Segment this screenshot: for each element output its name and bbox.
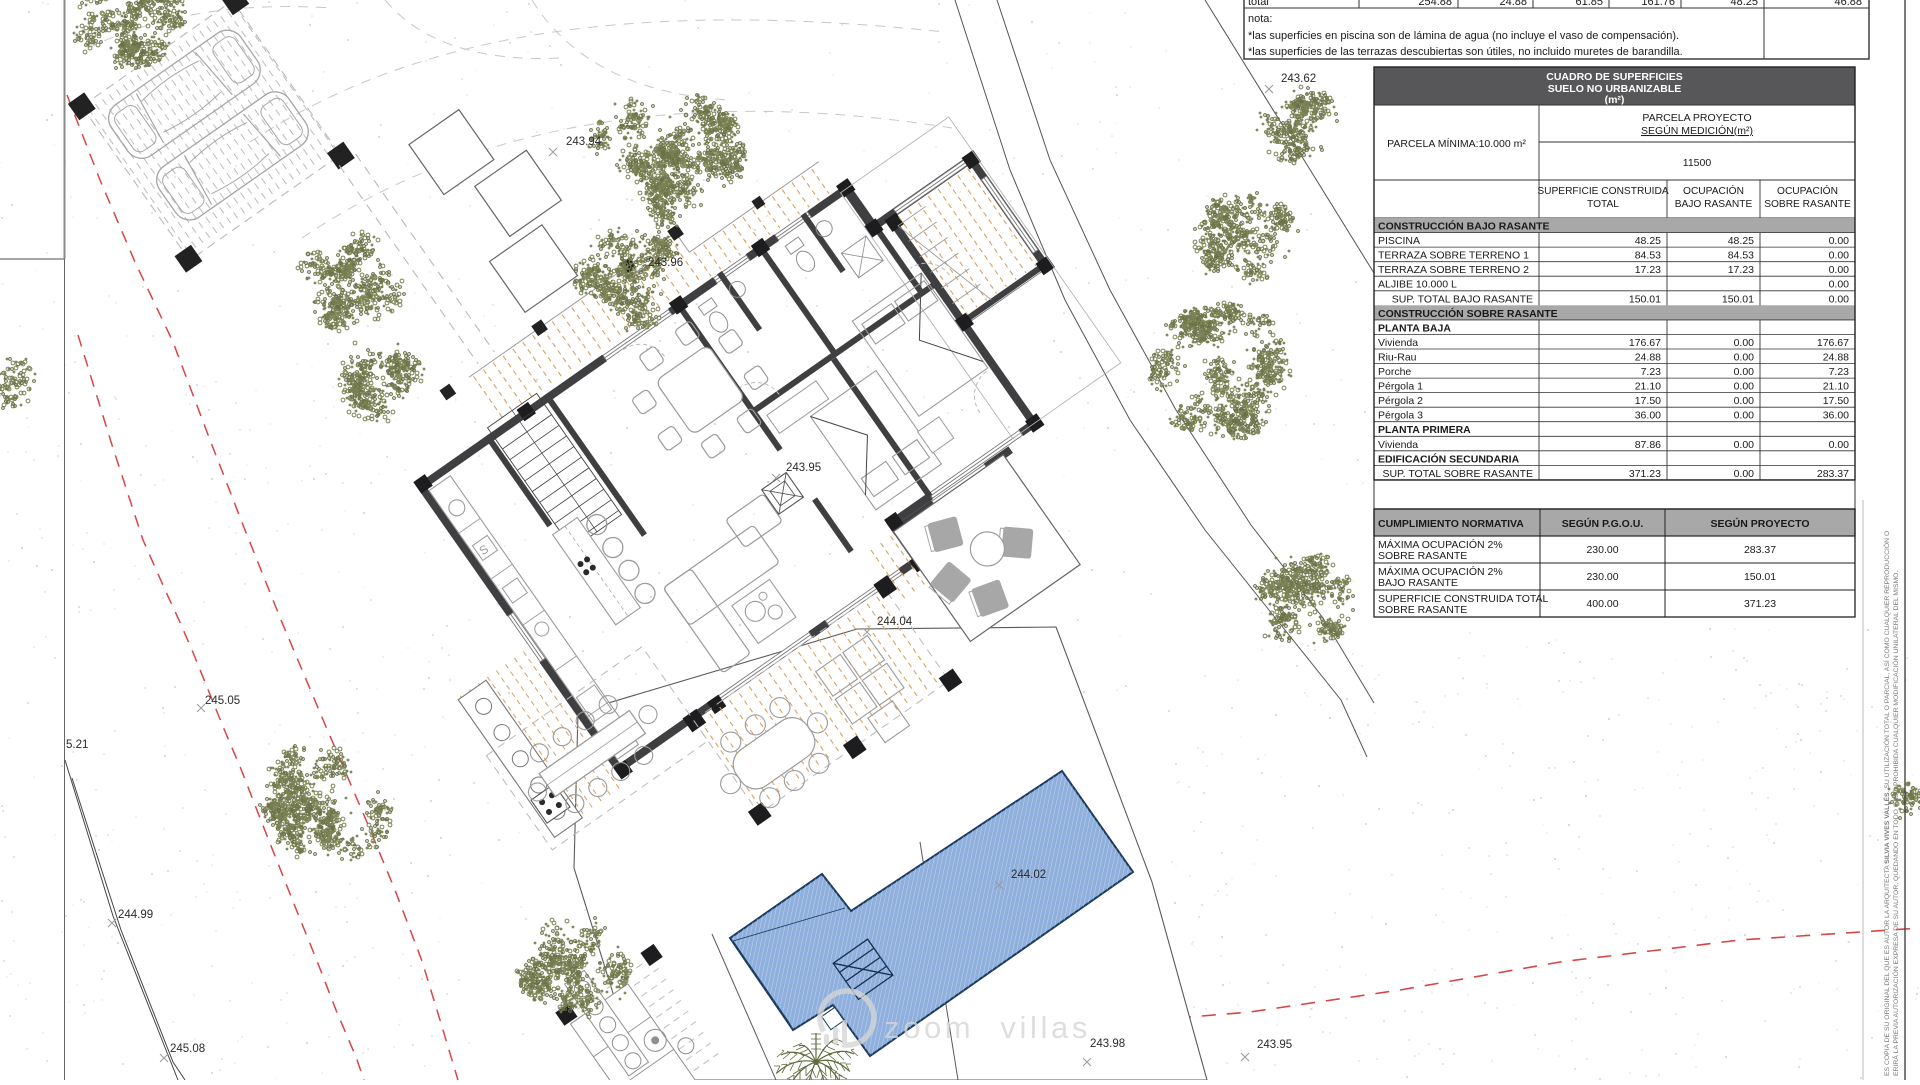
svg-text:SUP. TOTAL BAJO RASANTE: SUP. TOTAL BAJO RASANTE xyxy=(1392,293,1533,305)
svg-text:*las superficies de las terraz: *las superficies de las terrazas descubi… xyxy=(1248,46,1683,58)
svg-text:243.96: 243.96 xyxy=(648,257,683,269)
svg-text:48.25: 48.25 xyxy=(1728,235,1754,247)
svg-text:0.00: 0.00 xyxy=(1734,410,1755,422)
svg-text:0.00: 0.00 xyxy=(1734,439,1755,451)
svg-text:0.00: 0.00 xyxy=(1734,468,1755,480)
svg-text:CUMPLIMIENTO NORMATIVA: CUMPLIMIENTO NORMATIVA xyxy=(1378,518,1524,530)
svg-text:TOTAL: TOTAL xyxy=(1587,199,1619,210)
svg-text:ES COPIA DE SU ORIGINAL DEL QU: ES COPIA DE SU ORIGINAL DEL QUE ES AUTOR… xyxy=(1882,531,1891,1076)
svg-text:SUPERFICIE CONSTRUIDA: SUPERFICIE CONSTRUIDA xyxy=(1537,186,1669,197)
svg-text:24.88: 24.88 xyxy=(1635,352,1661,364)
svg-text:ERIRÁ LA PREVIA AUTORIZACIÓN E: ERIRÁ LA PREVIA AUTORIZACIÓN EXPRESA DE … xyxy=(1891,571,1900,1076)
svg-text:371.23: 371.23 xyxy=(1629,468,1661,480)
svg-text:PISCINA: PISCINA xyxy=(1378,235,1420,247)
svg-text:BAJO RASANTE: BAJO RASANTE xyxy=(1378,577,1458,589)
svg-text:244.02: 244.02 xyxy=(1011,869,1046,881)
svg-text:TERRAZA SOBRE TERRENO 1: TERRAZA SOBRE TERRENO 1 xyxy=(1378,250,1529,262)
svg-text:283.37: 283.37 xyxy=(1744,544,1776,556)
svg-text:0.00: 0.00 xyxy=(1734,352,1755,364)
svg-text:243.98: 243.98 xyxy=(1090,1038,1125,1050)
svg-text:244.04: 244.04 xyxy=(877,616,913,628)
svg-text:150.01: 150.01 xyxy=(1629,293,1661,305)
svg-text:283.37: 283.37 xyxy=(1817,468,1849,480)
svg-text:17.50: 17.50 xyxy=(1635,395,1661,407)
svg-text:Pérgola 2: Pérgola 2 xyxy=(1378,395,1423,407)
svg-text:0.00: 0.00 xyxy=(1829,279,1850,291)
svg-text:24.88: 24.88 xyxy=(1499,0,1527,8)
svg-text:zoom villas: zoom villas xyxy=(884,1010,1091,1045)
svg-text:87.86: 87.86 xyxy=(1635,439,1661,451)
svg-text:Porche: Porche xyxy=(1378,366,1411,378)
svg-text:48.25: 48.25 xyxy=(1730,0,1758,8)
svg-text:0.00: 0.00 xyxy=(1829,250,1850,262)
svg-text:ALJIBE 10.000 L: ALJIBE 10.000 L xyxy=(1378,279,1457,291)
svg-text:150.01: 150.01 xyxy=(1722,293,1754,305)
svg-text:*las superficies en piscina so: *las superficies en piscina son de lámin… xyxy=(1248,30,1679,42)
svg-text:PLANTA PRIMERA: PLANTA PRIMERA xyxy=(1378,424,1471,436)
svg-text:371.23: 371.23 xyxy=(1744,598,1776,610)
svg-text:0.00: 0.00 xyxy=(1734,366,1755,378)
svg-text:254.88: 254.88 xyxy=(1418,0,1452,8)
svg-text:SOBRE RASANTE: SOBRE RASANTE xyxy=(1764,199,1851,210)
svg-text:243.95: 243.95 xyxy=(1257,1039,1292,1051)
svg-text:Pérgola 3: Pérgola 3 xyxy=(1378,410,1423,422)
svg-text:CONSTRUCCIÓN SOBRE RASANTE: CONSTRUCCIÓN SOBRE RASANTE xyxy=(1378,307,1558,320)
svg-text:21.10: 21.10 xyxy=(1823,381,1849,393)
svg-text:OCUPACIÓN: OCUPACIÓN xyxy=(1777,184,1838,197)
svg-text:Pérgola 1: Pérgola 1 xyxy=(1378,381,1423,393)
svg-text:SOBRE RASANTE: SOBRE RASANTE xyxy=(1378,604,1467,616)
svg-text:PARCELA PROYECTO: PARCELA PROYECTO xyxy=(1642,112,1751,124)
svg-text:17.23: 17.23 xyxy=(1635,264,1661,276)
svg-text:BAJO RASANTE: BAJO RASANTE xyxy=(1675,199,1753,210)
svg-text:0.00: 0.00 xyxy=(1829,264,1850,276)
svg-text:Vivienda: Vivienda xyxy=(1378,439,1418,451)
svg-text:TERRAZA SOBRE TERRENO 2: TERRAZA SOBRE TERRENO 2 xyxy=(1378,264,1529,276)
svg-text:0.00: 0.00 xyxy=(1734,381,1755,393)
svg-text:SEGÚN PROYECTO: SEGÚN PROYECTO xyxy=(1711,517,1810,530)
svg-text:21.10: 21.10 xyxy=(1635,381,1661,393)
svg-text:Riu-Rau: Riu-Rau xyxy=(1378,352,1417,364)
svg-text:46.88: 46.88 xyxy=(1834,0,1862,8)
svg-text:245.05: 245.05 xyxy=(205,695,240,707)
svg-text:24.88: 24.88 xyxy=(1823,352,1849,364)
svg-text:48.25: 48.25 xyxy=(1635,235,1661,247)
svg-text:243.62: 243.62 xyxy=(1281,73,1316,85)
svg-text:400.00: 400.00 xyxy=(1586,598,1618,610)
svg-text:7.23: 7.23 xyxy=(1641,366,1662,378)
svg-text:230.00: 230.00 xyxy=(1586,544,1618,556)
svg-text:245.08: 245.08 xyxy=(170,1043,205,1055)
svg-text:total: total xyxy=(1248,0,1269,8)
svg-text:244.99: 244.99 xyxy=(118,909,153,921)
svg-text:0.00: 0.00 xyxy=(1829,235,1850,247)
svg-text:SEGÚN P.G.O.U.: SEGÚN P.G.O.U. xyxy=(1562,517,1644,530)
svg-text:SOBRE RASANTE: SOBRE RASANTE xyxy=(1378,550,1467,562)
svg-text:0.00: 0.00 xyxy=(1829,293,1850,305)
svg-text:SUP. TOTAL SOBRE RASANTE: SUP. TOTAL SOBRE RASANTE xyxy=(1382,468,1533,480)
svg-text:nota:: nota: xyxy=(1248,13,1272,25)
svg-text:5.21: 5.21 xyxy=(66,739,88,751)
svg-text:Vivienda: Vivienda xyxy=(1378,337,1418,349)
svg-text:17.50: 17.50 xyxy=(1823,395,1849,407)
svg-text:EDIFICACIÓN SECUNDARIA: EDIFICACIÓN SECUNDARIA xyxy=(1378,452,1520,465)
svg-text:CONSTRUCCIÓN BAJO RASANTE: CONSTRUCCIÓN BAJO RASANTE xyxy=(1378,220,1550,233)
svg-text:36.00: 36.00 xyxy=(1823,410,1849,422)
svg-text:0.00: 0.00 xyxy=(1829,439,1850,451)
svg-text:7.23: 7.23 xyxy=(1829,366,1850,378)
svg-text:176.67: 176.67 xyxy=(1629,337,1661,349)
svg-text:84.53: 84.53 xyxy=(1635,250,1661,262)
svg-text:176.67: 176.67 xyxy=(1817,337,1849,349)
svg-text:161.76: 161.76 xyxy=(1641,0,1675,8)
svg-text:0.00: 0.00 xyxy=(1734,395,1755,407)
svg-text:243.95: 243.95 xyxy=(786,462,821,474)
svg-text:11500: 11500 xyxy=(1683,157,1712,169)
svg-text:150.01: 150.01 xyxy=(1744,571,1776,583)
svg-text:61.85: 61.85 xyxy=(1575,0,1603,8)
svg-text:OCUPACIÓN: OCUPACIÓN xyxy=(1683,184,1744,197)
svg-text:PARCELA MÍNIMA:10.000 m²: PARCELA MÍNIMA:10.000 m² xyxy=(1387,137,1526,150)
svg-text:230.00: 230.00 xyxy=(1586,571,1618,583)
svg-text:0.00: 0.00 xyxy=(1734,337,1755,349)
svg-text:PLANTA BAJA: PLANTA BAJA xyxy=(1378,322,1451,334)
svg-text:36.00: 36.00 xyxy=(1635,410,1661,422)
svg-text:243.94: 243.94 xyxy=(566,136,602,148)
svg-text:84.53: 84.53 xyxy=(1728,250,1754,262)
svg-text:(m²): (m²) xyxy=(1605,94,1625,106)
svg-text:CUADRO DE SUPERFICIES: CUADRO DE SUPERFICIES xyxy=(1546,71,1683,83)
svg-text:SEGÚN MEDICIÓN(m²): SEGÚN MEDICIÓN(m²) xyxy=(1641,124,1753,137)
svg-text:17.23: 17.23 xyxy=(1728,264,1754,276)
